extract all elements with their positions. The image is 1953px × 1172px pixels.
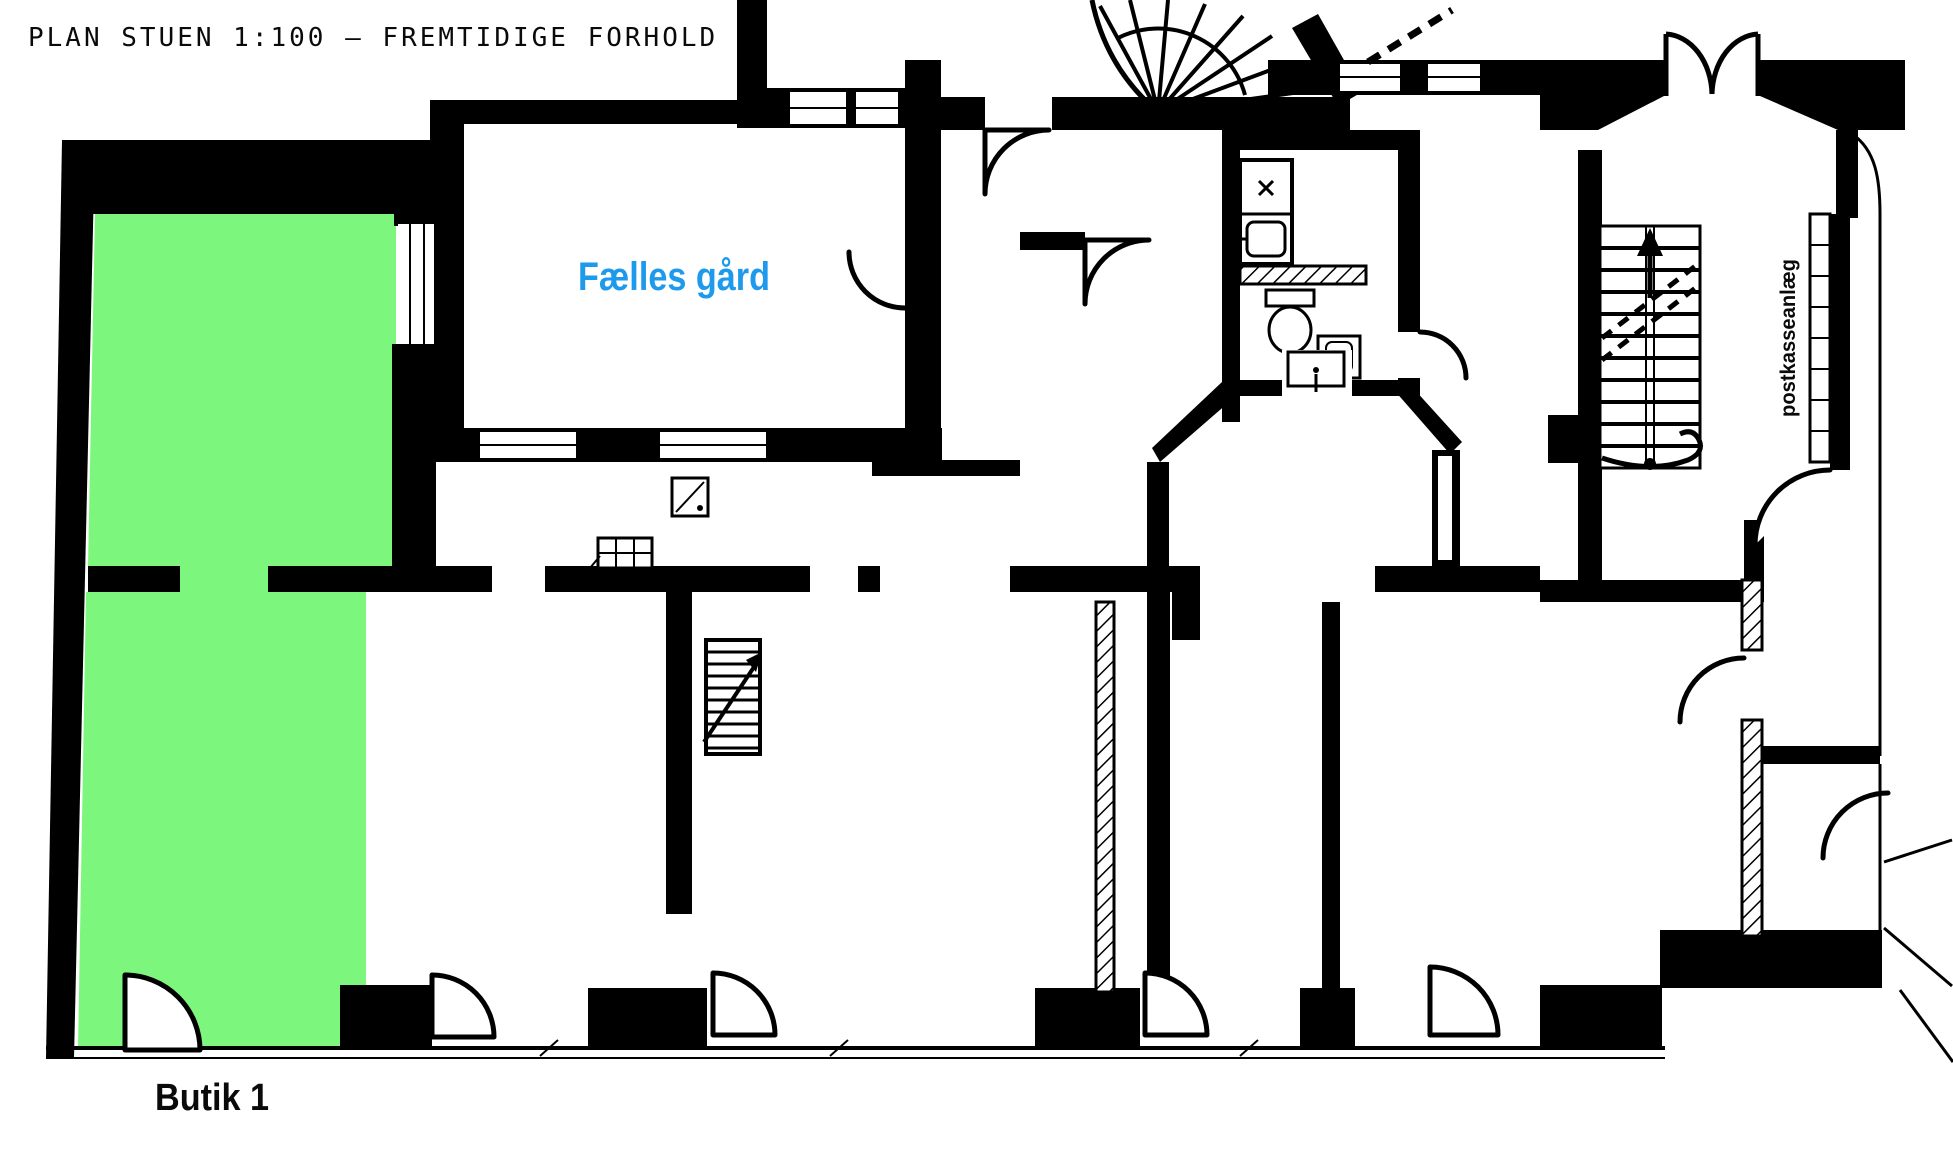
door-stairhall bbox=[1755, 470, 1830, 545]
courtyard-label: Fælles gård bbox=[578, 255, 770, 299]
bay-niche-fixture bbox=[1282, 350, 1352, 396]
door-facade-4 bbox=[1430, 967, 1498, 1035]
window-top-2 bbox=[856, 92, 898, 124]
window-bay-right bbox=[1438, 456, 1452, 560]
door-facade-2 bbox=[713, 973, 775, 1035]
window-topright-2 bbox=[1428, 64, 1480, 91]
window-top-1 bbox=[790, 92, 846, 124]
window-courtyard-2 bbox=[660, 432, 766, 458]
shop-highlight-area bbox=[78, 214, 396, 1050]
door-wc bbox=[1420, 332, 1466, 378]
plan-title: PLAN STUEN 1:100 – FREMTIDIGE FORHOLD bbox=[28, 23, 718, 53]
outer-lines bbox=[1852, 134, 1953, 1062]
door-facade-1 bbox=[432, 975, 494, 1037]
door-hall-mid bbox=[1085, 240, 1149, 304]
wc-door-gap bbox=[1398, 332, 1420, 378]
small-cabinet bbox=[672, 478, 708, 516]
window-shop-right bbox=[398, 224, 434, 344]
door-rightroom-1 bbox=[1680, 658, 1744, 722]
interior-stair bbox=[704, 640, 762, 754]
door-hall-top bbox=[985, 130, 1049, 194]
window-courtyard-1 bbox=[480, 432, 576, 458]
toilet bbox=[1266, 290, 1314, 353]
door-rightroom-2 bbox=[1823, 793, 1888, 858]
kitchen-sink-unit bbox=[1238, 160, 1292, 264]
shelf-unit bbox=[590, 538, 652, 568]
entry-double-door bbox=[1666, 34, 1758, 96]
shop-label: Butik 1 bbox=[155, 1077, 269, 1119]
window-topright-1 bbox=[1340, 64, 1400, 91]
door-facade-3 bbox=[1145, 973, 1207, 1035]
floorplan-page: PLAN STUEN 1:100 – FREMTIDIGE FORHOLD Fæ… bbox=[0, 0, 1953, 1172]
mailbox-label: postkasseanlæg bbox=[1777, 259, 1800, 417]
main-stair bbox=[1600, 226, 1700, 470]
door-courtyard bbox=[849, 252, 905, 308]
mailbox-unit bbox=[1810, 214, 1830, 462]
floorplan-drawing: PLAN STUEN 1:100 – FREMTIDIGE FORHOLD Fæ… bbox=[0, 0, 1953, 1172]
